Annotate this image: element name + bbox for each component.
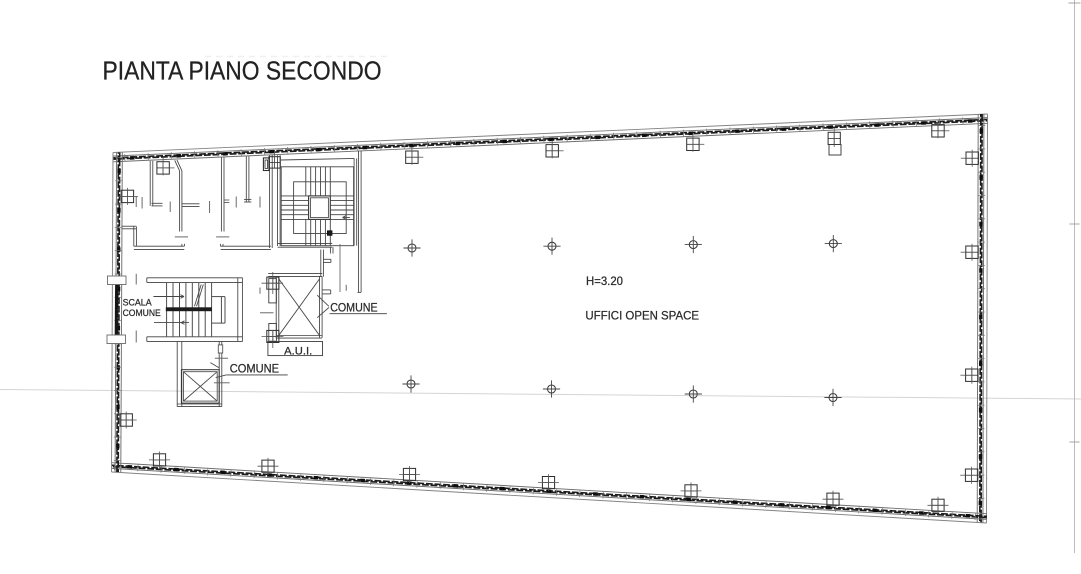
svg-text:PIANTA PIANO SECONDO: PIANTA PIANO SECONDO: [103, 58, 382, 86]
svg-text:SCALA: SCALA: [123, 298, 152, 308]
svg-text:A.U.I.: A.U.I.: [284, 346, 312, 358]
svg-text:H=3.20: H=3.20: [586, 274, 623, 288]
svg-text:COMUNE: COMUNE: [230, 363, 280, 375]
svg-text:COMUNE: COMUNE: [123, 308, 161, 318]
svg-text:UFFICI OPEN SPACE: UFFICI OPEN SPACE: [585, 308, 699, 322]
svg-text:COMUNE: COMUNE: [330, 302, 378, 314]
